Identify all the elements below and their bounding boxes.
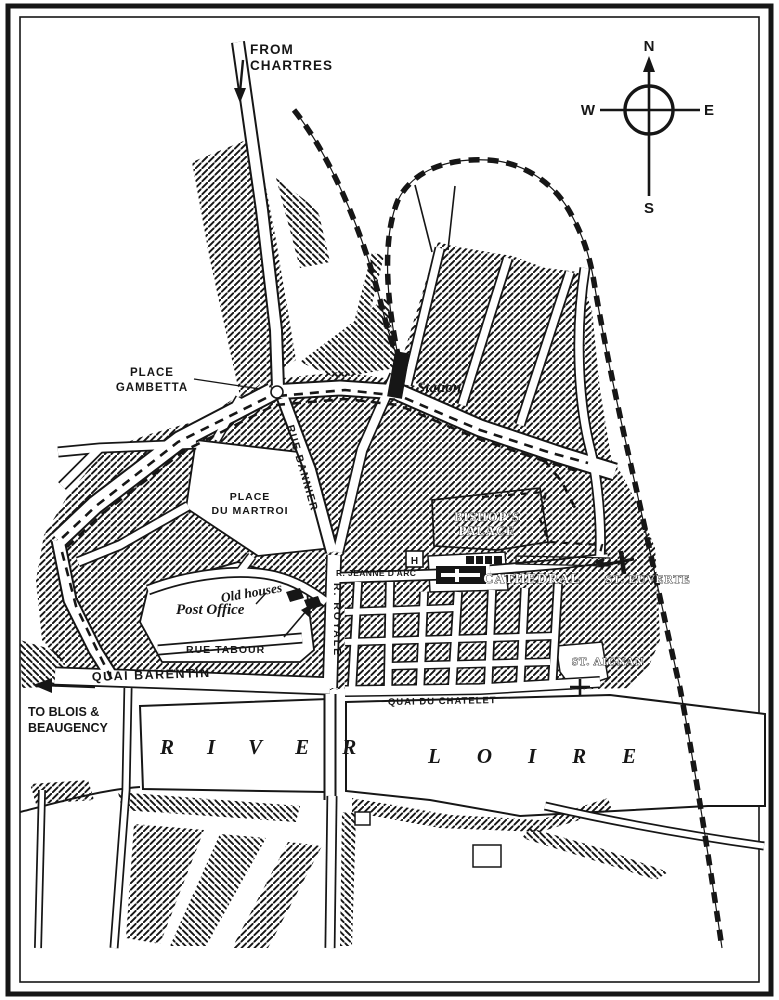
label-post-office: Post Office <box>176 602 245 618</box>
place-gambetta-circle <box>271 386 283 398</box>
label-place-gambetta-1: PLACE <box>130 367 174 379</box>
compass-e: E <box>704 102 714 119</box>
label-st-euverte: ST. EUVERTE <box>605 574 690 586</box>
label-station: Station <box>417 380 461 396</box>
label-from-chartres-2: CHARTRES <box>250 58 333 73</box>
compass-n: N <box>644 38 655 55</box>
minor-lanes <box>415 185 455 252</box>
north-arrow <box>643 56 655 72</box>
compass-rose <box>600 56 700 196</box>
label-rue-tabour: RUE TABOUR <box>186 644 265 656</box>
label-from-chartres-1: FROM <box>250 42 294 57</box>
label-place-gambetta-2: GAMBETTA <box>116 382 188 394</box>
label-loire: LOIRE <box>427 744 672 768</box>
building-block <box>473 845 501 867</box>
label-bishops-palace-2: PALACE <box>459 524 515 538</box>
label-st-aignan: ST. AIGNAN <box>572 656 644 668</box>
label-to-blois-2: BEAUGENCY <box>28 721 109 735</box>
map-canvas: FROM CHARTRES N W E S PLACE GAMBETTA Sta… <box>0 0 779 1000</box>
label-place-du-martroi-2: DU MARTROI <box>211 505 288 517</box>
compass-s: S <box>644 200 654 217</box>
label-rue-jeanne-darc: R. JEANNE D'ARC <box>336 568 416 578</box>
label-hotel-h: H <box>411 556 418 567</box>
label-bishops-palace-1: BISHOP'S <box>454 510 520 524</box>
compass-w: W <box>581 102 596 119</box>
label-place-du-martroi-1: PLACE <box>230 491 271 503</box>
map-orleans: FROM CHARTRES N W E S PLACE GAMBETTA Sta… <box>0 0 779 1000</box>
label-river: RIVER <box>159 735 389 759</box>
building-block <box>355 812 370 825</box>
label-quai-du-chatelet: QUAI DU CHATELET <box>388 695 497 708</box>
label-cathedral: CATHEDRAL <box>483 572 580 587</box>
label-to-blois-1: TO BLOIS & <box>28 705 99 719</box>
label-rue-royale: R. ROYALE <box>331 583 343 657</box>
